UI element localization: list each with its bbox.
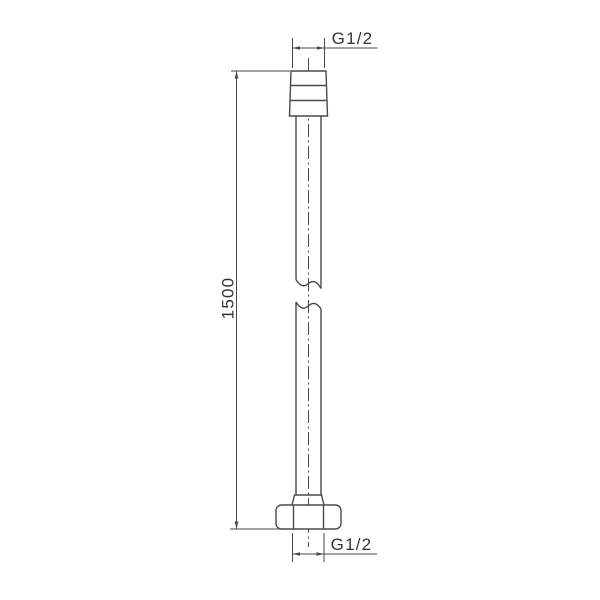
arrowhead-left	[293, 552, 301, 556]
arrowhead-right	[317, 46, 325, 50]
drawing-canvas: 1500 G1/2 G1/2	[0, 0, 600, 600]
arrowhead-left	[293, 46, 301, 50]
top-connector-body	[290, 71, 328, 116]
bottom-thread-label: G1/2	[331, 535, 373, 554]
arrowhead-up	[235, 71, 239, 79]
length-label: 1500	[219, 277, 238, 320]
top-thread-dimension: G1/2	[293, 29, 378, 68]
top-thread-label: G1/2	[332, 29, 374, 48]
bottom-thread-dimension: G1/2	[293, 533, 378, 562]
top-connector	[290, 71, 328, 116]
arrowhead-down	[235, 522, 239, 530]
arrowhead-right	[317, 552, 325, 556]
shower-hose-technical-drawing: 1500 G1/2 G1/2	[0, 0, 600, 600]
length-dimension: 1500	[219, 71, 291, 529]
hex-nut-body	[276, 505, 341, 529]
hex-nut	[276, 505, 341, 529]
